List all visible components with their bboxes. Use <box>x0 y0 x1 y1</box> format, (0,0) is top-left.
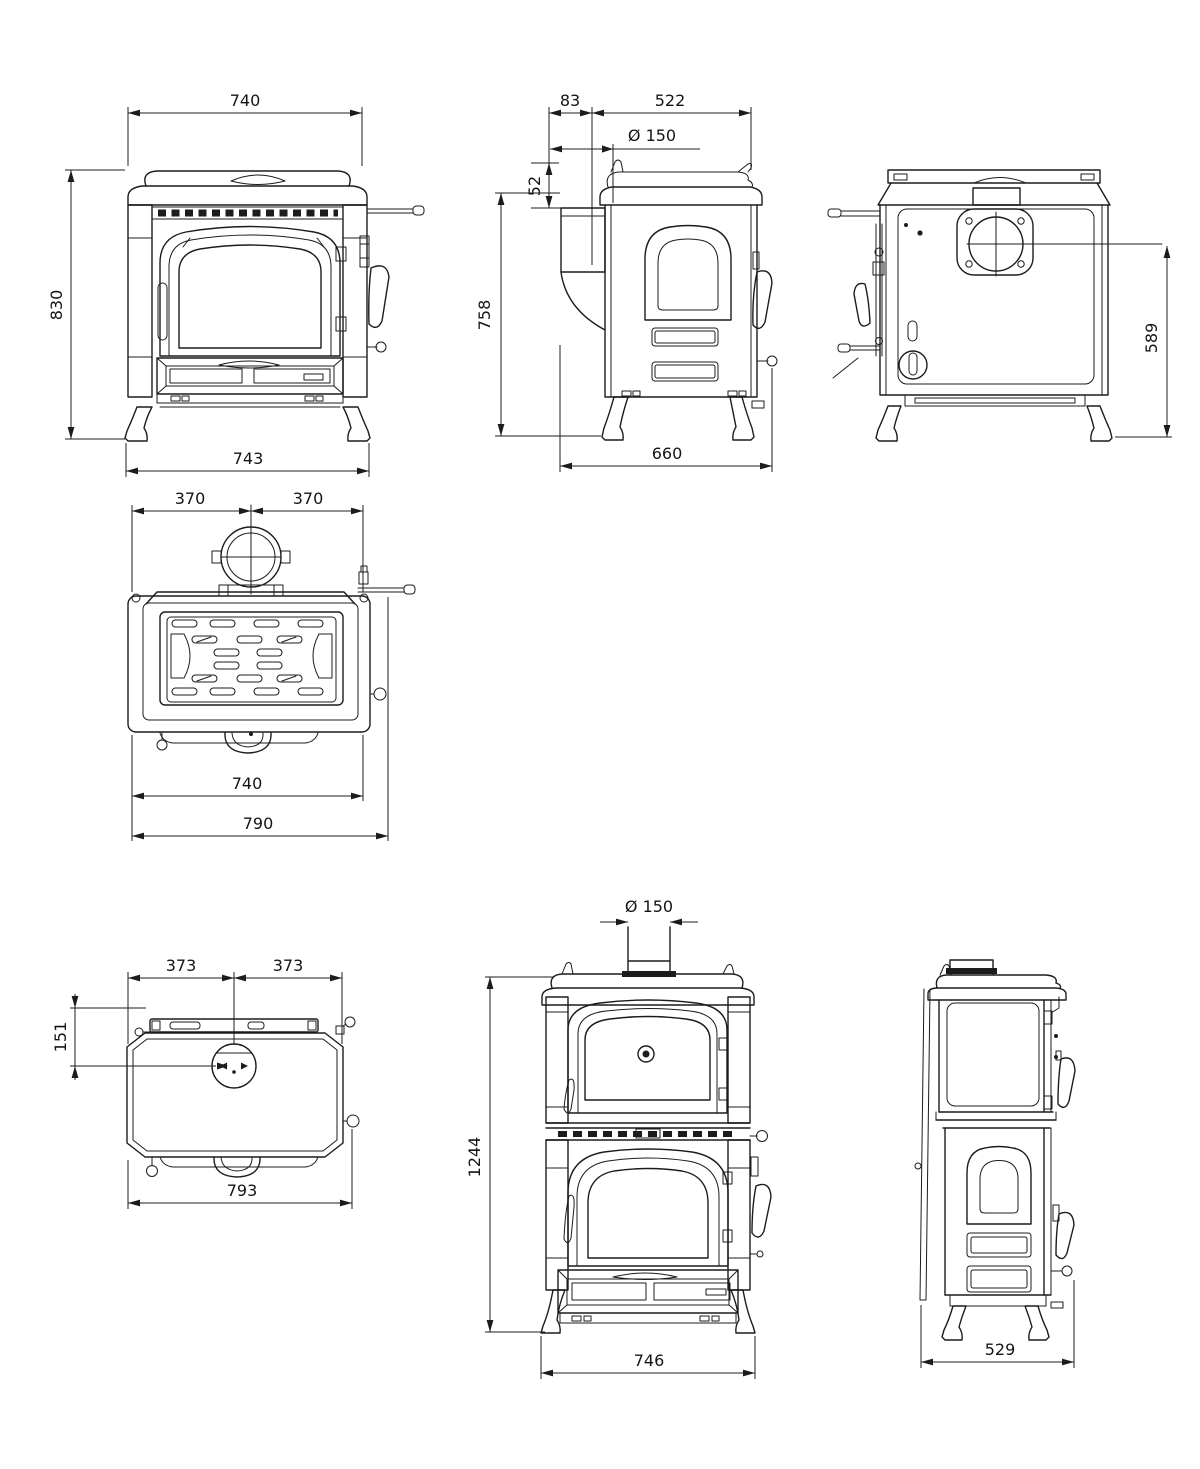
oven-side-panel <box>947 1003 1039 1106</box>
back-dimensions: 589 <box>1115 246 1172 437</box>
dim-side-top-depth: 522 <box>655 91 686 110</box>
oven-front-view: Ø 150 1244 746 <box>465 897 771 1379</box>
lid-handle <box>231 175 285 185</box>
top-dimensions: 370 370 740 790 <box>132 489 388 841</box>
dim-top-left-half: 370 <box>175 489 206 508</box>
oven-side-illustration <box>915 960 1075 1340</box>
dim-oven-front-height: 1244 <box>465 1137 484 1178</box>
dim-side-base-depth: 660 <box>652 444 683 463</box>
front-right-leg <box>343 407 370 441</box>
back-right-leg <box>1087 406 1112 441</box>
stove-dimension-drawing: 740 830 743 <box>0 0 1200 1469</box>
oven-top-illustration <box>127 1017 359 1177</box>
back-stove-illustration <box>828 170 1162 441</box>
top-view: 370 370 740 790 <box>128 489 415 841</box>
oven-door-latch <box>564 1079 574 1113</box>
side-front-leg <box>730 397 754 440</box>
oven-model-left-leg <box>541 1290 565 1333</box>
drawer-handle <box>219 361 279 368</box>
front-right-column <box>343 205 367 397</box>
firebox-door <box>160 227 340 357</box>
oven-side-back-leg <box>942 1306 966 1340</box>
oven-front-dimensions: Ø 150 1244 746 <box>465 897 755 1379</box>
door-hinge-bottom <box>336 317 346 331</box>
oven-model-right-leg <box>731 1290 755 1333</box>
door-handle-lever <box>369 266 389 327</box>
oven-model-ash-drawer <box>558 1270 738 1313</box>
dim-back-flue-height: 589 <box>1142 323 1161 354</box>
dim-top-body-width: 740 <box>232 774 263 793</box>
oven-front-illustration <box>541 927 771 1333</box>
oven-side-lower-handle <box>1056 1212 1074 1258</box>
dim-oven-top-flue-offset: 151 <box>51 1022 70 1053</box>
side-view: 83 522 Ø 150 52 758 660 <box>475 91 777 472</box>
dim-side-flue-diameter: Ø 150 <box>628 126 676 145</box>
oven-right-column <box>728 997 750 1123</box>
air-control-rod <box>367 209 413 213</box>
front-stove-illustration <box>125 171 424 441</box>
dim-top-right-half: 370 <box>293 489 324 508</box>
side-back-leg <box>602 397 628 440</box>
dim-front-top-width: 740 <box>230 91 261 110</box>
side-door-handle <box>753 271 772 329</box>
top-plate-outline <box>128 596 370 732</box>
firebox-door-latch <box>564 1195 574 1243</box>
side-top-plate <box>600 187 762 205</box>
rear-flue-outlet <box>561 208 605 272</box>
oven-side-upper-handle <box>1058 1058 1075 1108</box>
oven-side-arch-panel <box>967 1147 1031 1225</box>
oven-top-dimensions: 373 373 151 793 <box>51 956 352 1209</box>
firebox-right-column <box>728 1140 750 1290</box>
back-handle-lever <box>854 283 870 326</box>
side-dimensions: 83 522 Ø 150 52 758 660 <box>475 91 772 472</box>
dim-oven-front-flue-diameter: Ø 150 <box>625 897 673 916</box>
oven-top-view: 373 373 151 793 <box>51 956 359 1209</box>
dim-oven-top-left-half: 373 <box>166 956 197 975</box>
door-glass <box>179 245 321 348</box>
top-stove-illustration <box>128 505 415 753</box>
firebox-left-column <box>546 1140 568 1290</box>
ash-drawer <box>157 358 343 394</box>
dim-front-height: 830 <box>47 290 66 321</box>
technical-drawing-canvas: 740 830 743 <box>0 0 1200 1469</box>
back-view: 589 <box>828 170 1172 441</box>
dim-oven-top-overall-width: 793 <box>227 1181 258 1200</box>
front-left-column <box>128 205 152 397</box>
side-stove-illustration <box>561 160 777 440</box>
oven-top-plate-outline <box>127 1033 343 1157</box>
dim-side-height: 758 <box>475 300 494 331</box>
dim-oven-front-base-width: 746 <box>634 1351 665 1370</box>
front-view: 740 830 743 <box>47 91 424 477</box>
flue-pipe <box>628 927 670 971</box>
dim-oven-top-right-half: 373 <box>273 956 304 975</box>
front-left-leg <box>125 407 152 441</box>
hob-slots <box>172 620 323 695</box>
flue-stub <box>973 188 1020 205</box>
dim-top-overall-width: 790 <box>243 814 274 833</box>
oven-model-door-handle <box>752 1184 771 1237</box>
back-left-leg <box>876 406 901 441</box>
oven-side-top-plate <box>936 975 1060 988</box>
front-top-plate <box>128 186 367 205</box>
dim-oven-side-base-depth: 529 <box>985 1340 1016 1359</box>
back-heat-shield <box>920 989 930 1300</box>
dim-front-base-width: 743 <box>233 449 264 468</box>
hob-panel <box>160 612 343 705</box>
back-top-band <box>888 170 1100 183</box>
oven-side-front-leg <box>1025 1306 1049 1340</box>
oven-side-view: 529 <box>915 960 1075 1368</box>
dim-side-rear-offset: 83 <box>560 91 580 110</box>
